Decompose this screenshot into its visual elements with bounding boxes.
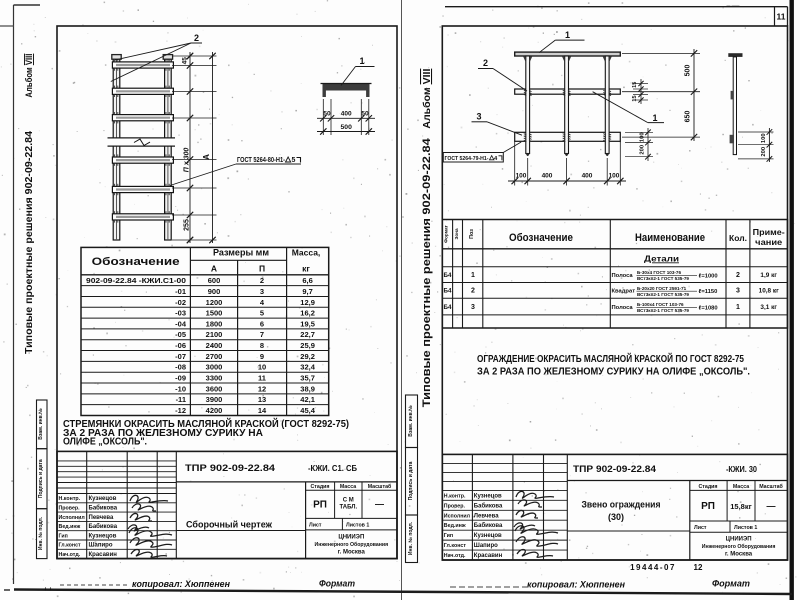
svg-text:Формат: Формат xyxy=(712,578,750,588)
svg-text:200: 200 xyxy=(640,145,646,155)
svg-text:ЦНИИЭП: ЦНИИЭП xyxy=(338,535,364,541)
svg-text:Инженерного Оборудования: Инженерного Оборудования xyxy=(314,541,388,548)
svg-text:Нач.отд.: Нач.отд. xyxy=(59,552,81,558)
svg-text:ЗА 2 РАЗА ПО ЖЕЛЕЗНОМУ: ЗА 2 РАЗА ПО ЖЕЛЕЗНОМУ СУРИКУ НА ОЛИФЕ „… xyxy=(477,366,750,378)
svg-text:Исполнил: Исполнил xyxy=(59,515,85,521)
svg-text:Обозначение: Обозначение xyxy=(509,232,573,244)
svg-text:100: 100 xyxy=(761,133,767,143)
svg-text:11: 11 xyxy=(777,12,786,22)
svg-text:19,5: 19,5 xyxy=(300,319,315,328)
svg-text:45,4: 45,4 xyxy=(300,406,315,415)
svg-text:1200: 1200 xyxy=(206,298,223,307)
svg-text:-05: -05 xyxy=(175,330,186,339)
svg-text:1: 1 xyxy=(736,304,740,311)
svg-text:Н.контр.: Н.контр. xyxy=(444,493,466,499)
svg-text:16,2: 16,2 xyxy=(300,309,315,318)
svg-text:Вед.инж: Вед.инж xyxy=(444,523,466,529)
svg-text:—: — xyxy=(375,499,384,509)
svg-text:Подпись и дата: Подпись и дата xyxy=(408,461,414,500)
svg-text:9: 9 xyxy=(260,352,264,361)
svg-text:-06: -06 xyxy=(175,341,186,350)
svg-text:-03: -03 xyxy=(175,309,186,318)
svg-text:900: 900 xyxy=(208,287,221,296)
svg-text:5: 5 xyxy=(260,309,264,318)
svg-text:4: 4 xyxy=(494,156,498,162)
svg-text:Альбом VIII: Альбом VIII xyxy=(421,69,433,129)
svg-text:ВСт3кп2-1 ГОСТ 535-79: ВСт3кп2-1 ГОСТ 535-79 xyxy=(637,308,689,313)
svg-text:ГОСТ 5264-79-Н1-: ГОСТ 5264-79-Н1- xyxy=(445,156,489,162)
svg-text:-09: -09 xyxy=(175,374,186,383)
svg-text:3000: 3000 xyxy=(206,363,223,372)
svg-text:15: 15 xyxy=(632,95,638,101)
svg-text:5: 5 xyxy=(292,157,296,164)
svg-text:С М: С М xyxy=(343,498,354,504)
svg-text:г. Москва: г. Москва xyxy=(725,552,753,558)
svg-text:1: 1 xyxy=(359,56,364,66)
svg-text:ВСт3кп2-1 ГОСТ 535-79: ВСт3кп2-1 ГОСТ 535-79 xyxy=(637,276,689,281)
svg-text:-04: -04 xyxy=(175,319,187,328)
svg-text:ℓ=1150: ℓ=1150 xyxy=(698,289,718,295)
svg-text:А: А xyxy=(211,264,217,274)
svg-text:Бабикова: Бабикова xyxy=(474,502,503,509)
svg-text:2: 2 xyxy=(471,288,475,295)
svg-text:13: 13 xyxy=(258,395,266,404)
svg-text:ОЛИФЕ „ОКСОЛЬ".: ОЛИФЕ „ОКСОЛЬ". xyxy=(63,436,147,448)
svg-text:Н.контр.: Н.контр. xyxy=(59,496,81,502)
svg-text:2: 2 xyxy=(736,272,740,279)
svg-text:ЦНИИЭП: ЦНИИЭП xyxy=(726,537,752,543)
svg-text:45: 45 xyxy=(182,57,189,65)
svg-text:9,7: 9,7 xyxy=(302,287,312,296)
svg-text:Обозначение: Обозначение xyxy=(92,256,180,268)
svg-text:Приме-: Приме- xyxy=(753,227,785,237)
svg-text:38,9: 38,9 xyxy=(300,384,315,393)
svg-text:-07: -07 xyxy=(175,352,186,361)
svg-text:Гл.конст: Гл.конст xyxy=(59,543,82,549)
svg-text:15,8кг: 15,8кг xyxy=(730,502,751,511)
svg-text:Б-20х20 ГОСТ 2591-71: Б-20х20 ГОСТ 2591-71 xyxy=(637,286,687,291)
svg-text:Б4: Б4 xyxy=(444,272,452,279)
svg-text:Кузнецов: Кузнецов xyxy=(89,533,117,539)
svg-text:Масштаб: Масштаб xyxy=(368,483,392,490)
svg-text:2: 2 xyxy=(194,33,199,43)
svg-text:255: 255 xyxy=(184,219,191,231)
svg-text:19444-07: 19444-07 xyxy=(630,563,676,572)
svg-text:3: 3 xyxy=(471,304,475,311)
svg-text:ℓ=1000: ℓ=1000 xyxy=(698,273,718,279)
svg-text:ℓ=1080: ℓ=1080 xyxy=(698,305,718,311)
svg-text:Подпись и дата: Подпись и дата xyxy=(38,459,44,498)
svg-text:-11: -11 xyxy=(176,395,186,404)
svg-text:Б4: Б4 xyxy=(444,288,452,295)
svg-text:6,6: 6,6 xyxy=(302,276,312,285)
svg-text:копировал: Хюппенен: копировал: Хюппенен xyxy=(527,579,625,590)
svg-text:кг: кг xyxy=(302,264,310,274)
svg-text:Масса: Масса xyxy=(340,484,356,490)
svg-text:12,9: 12,9 xyxy=(300,298,315,307)
svg-text:Формат: Формат xyxy=(319,578,355,588)
svg-text:-КЖИ. 30: -КЖИ. 30 xyxy=(726,464,757,474)
svg-text:-КЖИ. С1. СБ: -КЖИ. С1. СБ xyxy=(308,463,357,473)
svg-text:2: 2 xyxy=(483,58,488,68)
svg-text:Шапиро: Шапиро xyxy=(89,543,113,549)
svg-text:Левчева: Левчева xyxy=(474,513,499,519)
svg-text:Листов 1: Листов 1 xyxy=(346,523,369,529)
svg-text:Красавин: Красавин xyxy=(89,552,118,558)
svg-text:2700: 2700 xyxy=(206,352,223,361)
svg-text:П x 300: П x 300 xyxy=(184,148,191,173)
svg-text:3: 3 xyxy=(476,112,481,122)
svg-text:1,9 кг: 1,9 кг xyxy=(760,272,777,279)
svg-text:Инв. № подл.: Инв. № подл. xyxy=(38,516,44,550)
svg-text:2100: 2100 xyxy=(206,330,223,339)
svg-text:1: 1 xyxy=(652,113,657,123)
svg-text:400: 400 xyxy=(582,173,593,180)
svg-text:10,8 кг: 10,8 кг xyxy=(759,288,779,295)
svg-text:Кол.: Кол. xyxy=(729,233,747,243)
svg-text:32,4: 32,4 xyxy=(300,363,315,372)
svg-text:Лист: Лист xyxy=(694,525,707,531)
svg-text:Гип: Гип xyxy=(59,533,68,539)
svg-text:Кузнецов: Кузнецов xyxy=(474,493,502,499)
svg-text:Шапиро: Шапиро xyxy=(474,543,498,549)
svg-text:3900: 3900 xyxy=(206,395,223,404)
svg-text:100: 100 xyxy=(609,173,620,180)
svg-text:копировал: Хюппенен: копировал: Хюппенен xyxy=(132,579,230,590)
svg-text:Квадрат: Квадрат xyxy=(612,289,636,295)
svg-text:400: 400 xyxy=(542,173,553,180)
svg-text:РП: РП xyxy=(701,501,715,512)
svg-text:Масса,: Масса, xyxy=(292,248,321,258)
svg-text:Сборочный чертеж: Сборочный чертеж xyxy=(186,520,272,531)
svg-text:1: 1 xyxy=(565,30,570,40)
svg-text:-08: -08 xyxy=(175,363,186,372)
svg-text:Вед.инж: Вед.инж xyxy=(59,524,81,530)
svg-text:14: 14 xyxy=(258,406,267,415)
svg-text:29,2: 29,2 xyxy=(300,352,315,361)
svg-text:Полоса: Полоса xyxy=(612,273,634,279)
svg-text:Б-100х4 ГОСТ 103-76: Б-100х4 ГОСТ 103-76 xyxy=(637,302,684,307)
svg-text:Инженерного Оборудования: Инженерного Оборудования xyxy=(702,543,776,550)
svg-text:Листов 1: Листов 1 xyxy=(734,525,757,531)
svg-text:Масса: Масса xyxy=(733,484,749,490)
svg-text:6: 6 xyxy=(260,319,264,328)
svg-text:ВСт3кп2-1 ГОСТ 535-79: ВСт3кп2-1 ГОСТ 535-79 xyxy=(637,292,689,297)
svg-text:100: 100 xyxy=(516,173,527,180)
svg-text:ТПР 902-09-22.84: ТПР 902-09-22.84 xyxy=(185,463,276,474)
svg-text:500: 500 xyxy=(685,65,692,77)
svg-text:Взам. инв.№: Взам. инв.№ xyxy=(408,405,414,437)
svg-text:650: 650 xyxy=(685,111,692,123)
svg-text:2: 2 xyxy=(260,276,264,285)
svg-text:3: 3 xyxy=(260,287,264,296)
svg-text:10: 10 xyxy=(258,363,266,372)
svg-text:22,7: 22,7 xyxy=(300,330,315,339)
svg-text:50: 50 xyxy=(323,111,331,118)
svg-text:35,7: 35,7 xyxy=(300,374,315,383)
svg-text:4200: 4200 xyxy=(206,406,223,415)
svg-text:1500: 1500 xyxy=(206,309,223,318)
svg-text:чание: чание xyxy=(755,237,782,247)
svg-text:Стадия: Стадия xyxy=(698,484,717,490)
svg-text:Бабикова: Бабикова xyxy=(89,504,118,511)
svg-text:Зона: Зона xyxy=(454,228,459,239)
svg-text:3300: 3300 xyxy=(206,374,223,383)
svg-text:Масштаб: Масштаб xyxy=(759,483,783,490)
svg-text:4: 4 xyxy=(260,298,265,307)
svg-text:Лист: Лист xyxy=(309,523,322,529)
svg-text:+ +: + + xyxy=(44,587,53,593)
svg-text:-01: -01 xyxy=(175,287,186,296)
svg-text:Типовые проектные решения 9: Типовые проектные решения 902-09-22.84 xyxy=(421,137,433,407)
svg-text:г. Москва: г. Москва xyxy=(338,550,366,556)
svg-text:Типовые проектные решения 9: Типовые проектные решения 902-09-22.84 xyxy=(24,131,35,354)
svg-text:Исполнил: Исполнил xyxy=(444,513,470,519)
svg-text:ГОСТ 5264-80-Н1-: ГОСТ 5264-80-Н1- xyxy=(237,155,285,164)
svg-text:600: 600 xyxy=(208,276,221,285)
svg-text:12: 12 xyxy=(694,563,703,572)
svg-text:42,1: 42,1 xyxy=(300,395,315,404)
svg-text:1: 1 xyxy=(471,272,475,279)
svg-text:—: — xyxy=(767,501,776,511)
svg-text:Провер.: Провер. xyxy=(59,505,81,511)
svg-text:3: 3 xyxy=(736,288,740,295)
svg-text:400: 400 xyxy=(341,111,352,118)
svg-text:(30): (30) xyxy=(608,512,624,522)
svg-text:Б4: Б4 xyxy=(444,304,452,311)
svg-text:Кузнецов: Кузнецов xyxy=(89,496,117,502)
svg-text:ТАБЛ.: ТАБЛ. xyxy=(339,505,357,511)
svg-text:25,9: 25,9 xyxy=(300,341,315,350)
svg-text:Бабикова: Бабикова xyxy=(89,523,118,530)
svg-text:8: 8 xyxy=(260,341,264,350)
svg-text:Полоса: Полоса xyxy=(612,305,634,311)
svg-text:ТПР 902-09-22.84: ТПР 902-09-22.84 xyxy=(573,464,657,475)
svg-text:П: П xyxy=(259,264,265,274)
svg-text:Наименование: Наименование xyxy=(635,232,705,244)
svg-text:15: 15 xyxy=(632,82,638,88)
svg-text:-10: -10 xyxy=(175,384,186,393)
svg-text:-12: -12 xyxy=(175,406,186,415)
svg-text:-02: -02 xyxy=(175,298,186,307)
svg-text:Формат: Формат xyxy=(444,224,449,242)
svg-text:100: 100 xyxy=(640,132,646,142)
svg-text:Детали: Детали xyxy=(644,253,679,263)
svg-text:Гл.конст: Гл.конст xyxy=(444,543,467,549)
svg-text:12: 12 xyxy=(258,384,266,393)
svg-text:1800: 1800 xyxy=(206,319,223,328)
svg-text:7: 7 xyxy=(260,330,264,339)
svg-text:Провер.: Провер. xyxy=(444,503,466,509)
svg-text:А: А xyxy=(202,154,211,160)
svg-text:Поз: Поз xyxy=(469,229,475,239)
svg-text:РП: РП xyxy=(313,500,327,511)
svg-text:500: 500 xyxy=(341,124,353,131)
svg-text:Альбом VIII: Альбом VIII xyxy=(24,54,35,98)
svg-text:3600: 3600 xyxy=(206,384,223,393)
svg-text:50: 50 xyxy=(361,111,369,118)
svg-text:Инв. № подл.: Инв. № подл. xyxy=(408,521,414,555)
svg-text:Бабикова: Бабикова xyxy=(474,522,503,529)
svg-text:Кузнецов: Кузнецов xyxy=(474,533,502,539)
svg-text:3,1 кг: 3,1 кг xyxy=(760,304,777,311)
svg-text:Нач.отд.: Нач.отд. xyxy=(444,553,466,559)
svg-text:11: 11 xyxy=(258,374,266,383)
svg-text:2400: 2400 xyxy=(206,341,223,350)
svg-text:Красавин: Красавин xyxy=(474,553,503,559)
svg-text:Певчева: Певчева xyxy=(89,515,115,521)
svg-text:Гип: Гип xyxy=(444,533,453,539)
svg-text:Звено ограждения: Звено ограждения xyxy=(582,500,661,511)
svg-text:Взам. инв.№: Взам. инв.№ xyxy=(38,408,44,440)
svg-text:ОГРАЖДЕНИЕ ОКРАСИТЬ МАСЛ: ОГРАЖДЕНИЕ ОКРАСИТЬ МАСЛЯНОЙ КРАСКОЙ ПО … xyxy=(477,352,744,365)
svg-text:Размеры мм: Размеры мм xyxy=(213,248,269,258)
svg-text:200: 200 xyxy=(761,147,767,157)
svg-text:902-09-22.84 -КЖИ.С1-00: 902-09-22.84 -КЖИ.С1-00 xyxy=(86,276,186,285)
svg-text:Стадия: Стадия xyxy=(310,484,329,490)
svg-text:Б-30х4 ГОСТ 103-76: Б-30х4 ГОСТ 103-76 xyxy=(637,270,681,275)
